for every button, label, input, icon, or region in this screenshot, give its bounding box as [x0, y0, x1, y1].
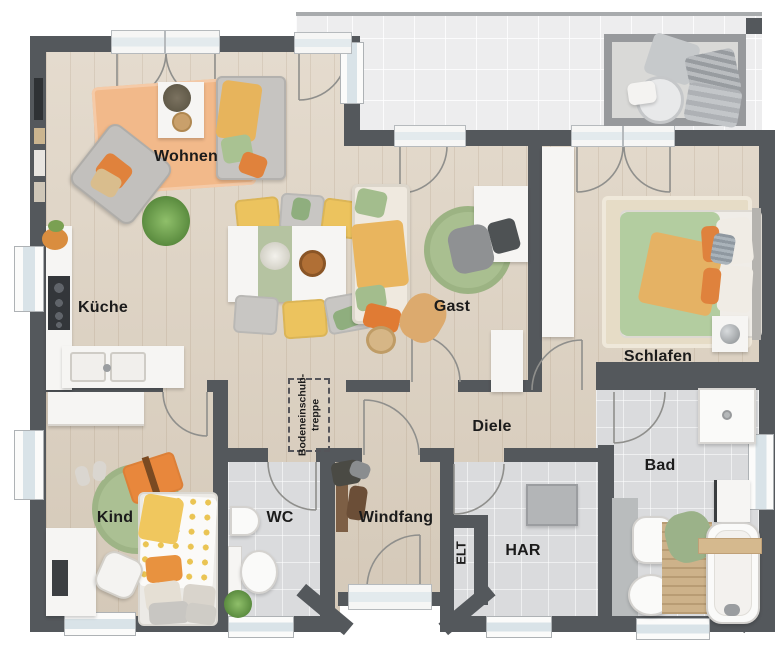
entrance-door — [348, 584, 432, 610]
wall-segment — [228, 448, 268, 462]
wall-segment — [528, 145, 542, 392]
floor-plant — [142, 196, 190, 246]
wc-toilet-bowl — [240, 550, 278, 594]
room-label-bad: Bad — [645, 457, 676, 475]
kids-pillow-gray — [148, 601, 189, 626]
slipper — [92, 460, 107, 481]
bed-headboard — [752, 208, 761, 340]
wardrobe — [48, 392, 144, 426]
bathtub-tray — [698, 538, 762, 554]
wall-segment — [420, 448, 454, 462]
daybed-duvet-yellow — [351, 219, 410, 290]
room-label-wohnen: Wohnen — [154, 148, 218, 166]
window — [486, 616, 552, 638]
kitchen-sink — [70, 352, 106, 382]
attic-ladder-label: Bodeneinschub- treppe — [296, 374, 321, 456]
room-label-schlafen: Schlafen — [624, 348, 692, 366]
hall-cupboard — [491, 330, 523, 392]
room-label-windfang: Windfang — [359, 509, 433, 527]
har-appliance — [526, 484, 578, 526]
terrace-corner-post — [746, 18, 762, 34]
wc-plant — [224, 590, 252, 618]
decor-tray — [172, 112, 192, 132]
kitchen-sink — [110, 352, 146, 382]
attic-ladder-line2: treppe — [309, 399, 321, 431]
wall-segment — [504, 448, 598, 462]
wall-shelf-books — [34, 150, 45, 176]
wall-segment — [207, 380, 228, 392]
flower-bouquet — [260, 242, 290, 270]
bath-cabinet — [714, 480, 750, 522]
window — [748, 434, 774, 510]
room-label-kind: Kind — [97, 509, 133, 527]
wall-segment — [346, 380, 410, 392]
cooktop — [48, 276, 70, 330]
terrace-edge — [296, 12, 762, 16]
wall-segment — [523, 380, 542, 392]
room-label-elt: ELT — [454, 541, 469, 565]
kids-laptop — [52, 560, 68, 596]
room-label-diele: Diele — [472, 418, 511, 436]
wall-segment — [440, 462, 454, 632]
table-lamp — [720, 324, 740, 344]
terrace-door-wohnen — [294, 32, 352, 54]
bed-pillow-orange — [700, 267, 722, 305]
patio-door-divider — [164, 30, 166, 54]
builtin-cabinet — [542, 147, 574, 337]
wall-shelf-books — [34, 128, 45, 144]
room-label-wc: WC — [266, 509, 293, 527]
table-plant — [163, 84, 191, 112]
kids-blanket-orange — [145, 554, 183, 583]
floor-plan: Bodeneinschub- treppe Wohnen Küche Gast … — [0, 0, 775, 651]
wall-segment — [30, 36, 46, 632]
wall-segment — [596, 362, 775, 390]
shower-drain — [722, 410, 732, 420]
kids-duvet-fold-yellow — [137, 493, 184, 545]
terrace-tray — [627, 80, 658, 106]
wall-segment — [458, 380, 491, 392]
kids-pillow-gray — [185, 602, 217, 626]
dining-chair-gray — [233, 295, 280, 336]
fruit-bowl — [299, 250, 326, 277]
wall-shelf-books — [34, 182, 45, 202]
tv-lowboard — [34, 78, 43, 120]
bed-pillow — [716, 265, 753, 313]
sofa-throw-blanket — [215, 79, 263, 142]
room-label-kueche: Küche — [78, 299, 128, 317]
room-label-har: HAR — [505, 542, 540, 560]
terrace-door-gast — [394, 125, 466, 147]
window — [636, 618, 710, 640]
terrace-door-divider — [622, 125, 624, 147]
wc-sink — [230, 506, 260, 536]
window — [228, 616, 294, 638]
room-label-gast: Gast — [434, 298, 470, 316]
dining-chair-yellow — [282, 299, 329, 340]
kitchen-faucet — [103, 364, 111, 372]
window — [14, 430, 44, 500]
wicker-basket — [366, 326, 396, 354]
window — [14, 246, 44, 312]
bathtub-faucet — [724, 604, 740, 616]
attic-ladder-line1: Bodeneinschub- — [296, 374, 308, 456]
pineapple-leaves — [48, 220, 64, 232]
wall-segment — [474, 515, 488, 605]
wall-segment — [450, 515, 474, 528]
